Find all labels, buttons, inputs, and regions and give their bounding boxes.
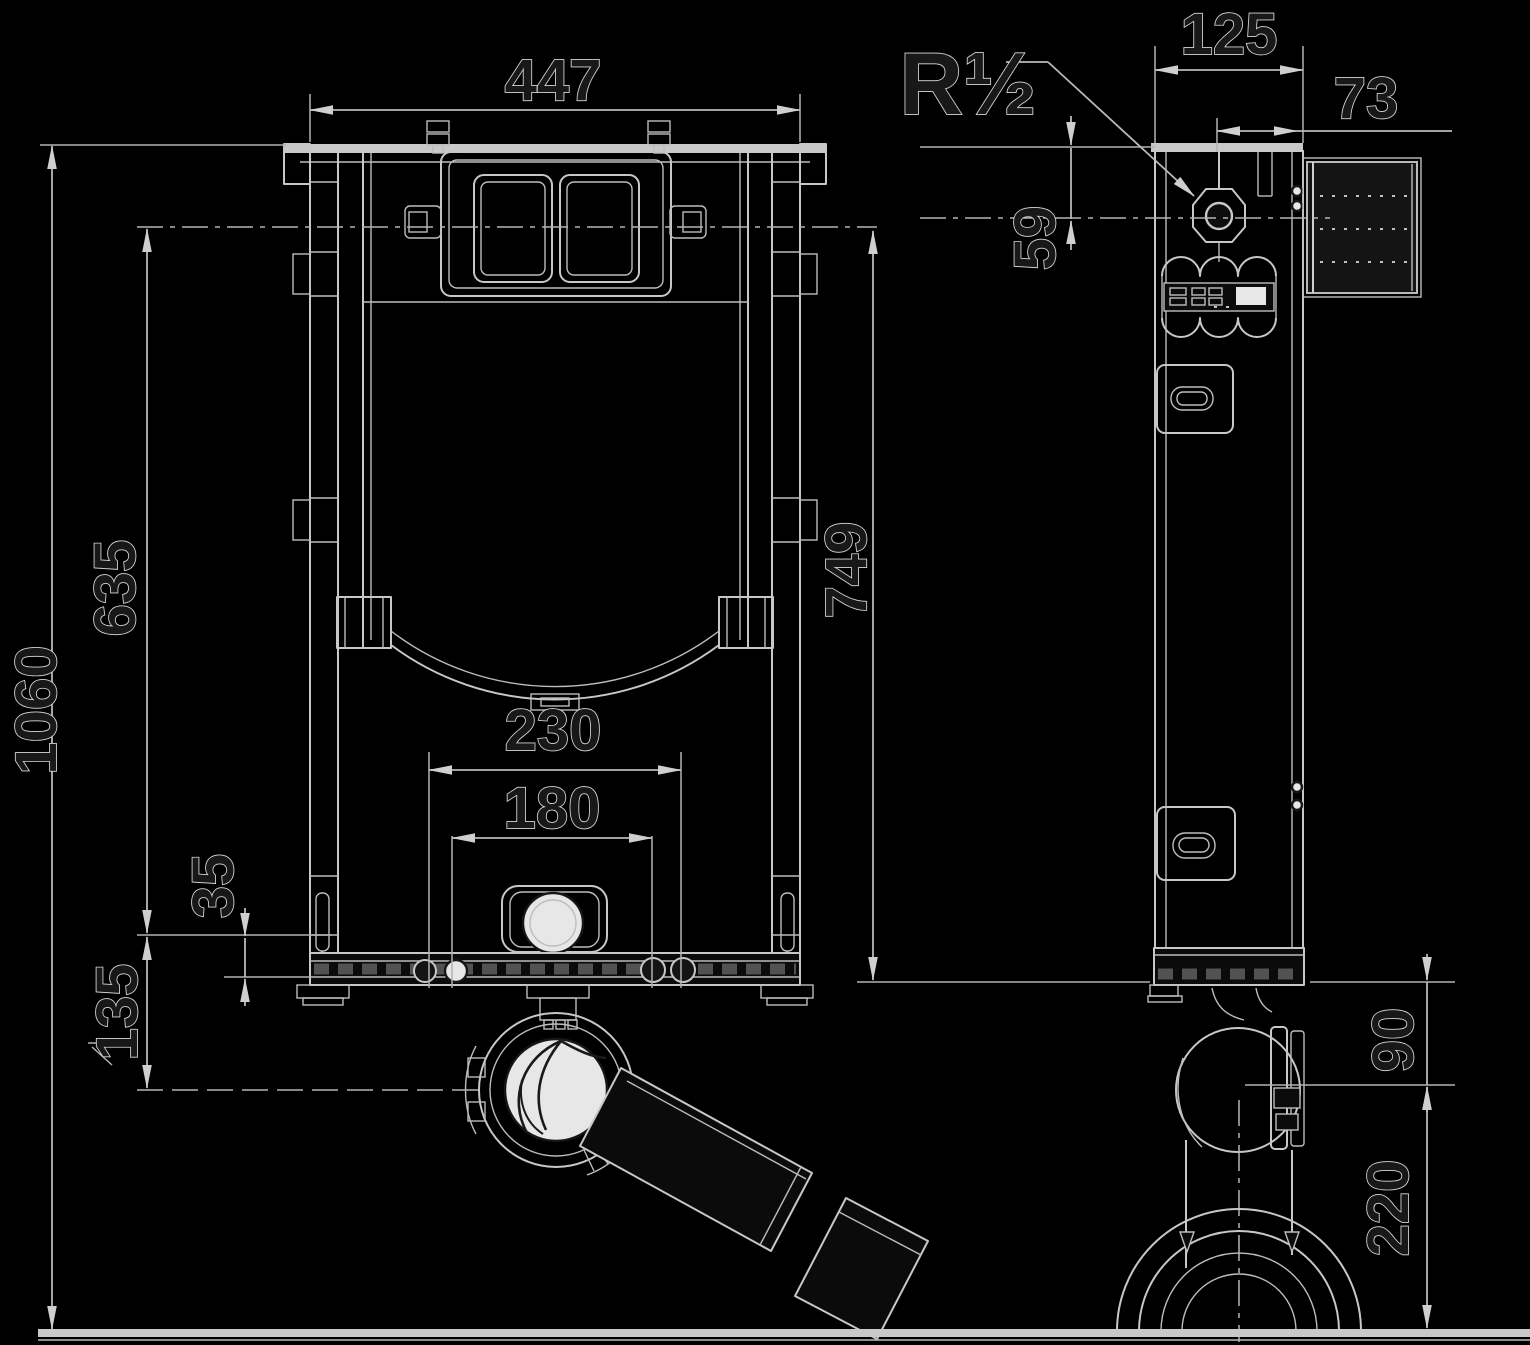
supply-thread <box>1206 203 1232 229</box>
annotation-r-half: R½ <box>900 34 1194 196</box>
dim-label-220: 220 <box>1356 1160 1421 1257</box>
fixing-hole-open <box>445 960 467 982</box>
frame-left-upright <box>293 153 338 985</box>
dim-label-90: 90 <box>1361 1008 1426 1073</box>
dim-label-35: 35 <box>181 854 246 919</box>
dim-label-1060: 1060 <box>4 645 69 774</box>
drain-assembly <box>466 985 929 1339</box>
frame-top-bar <box>284 144 826 184</box>
service-opening-lower <box>1157 807 1235 880</box>
dim-59: 59 <box>920 116 1330 270</box>
side-foot <box>1148 948 1304 1002</box>
dim-635: 635 <box>83 227 877 933</box>
dim-label-230: 230 <box>505 698 602 763</box>
dim-35: 35 <box>181 854 310 1006</box>
dim-label-135: 135 <box>85 964 150 1061</box>
fixing-hole <box>641 958 665 982</box>
side-frame <box>1151 143 1303 948</box>
dim-label-447: 447 <box>505 48 602 113</box>
floor-line <box>38 1329 1530 1340</box>
dim-220: 220 <box>1356 1087 1427 1328</box>
outlet-spigot <box>795 1198 928 1339</box>
bowl-support-bracket <box>337 597 773 710</box>
frame-right-upright <box>772 153 817 985</box>
dim-749: 749 <box>814 231 1455 982</box>
drain-elbow-side <box>1117 988 1361 1342</box>
dim-label-180: 180 <box>504 776 601 841</box>
adjustable-feet <box>297 985 813 1005</box>
frame-bottom-rail <box>310 953 800 985</box>
service-opening-upper <box>1157 365 1233 433</box>
dim-label-635: 635 <box>83 540 148 637</box>
corrugated-flush-pipe <box>1162 257 1276 337</box>
outlet-pipe <box>580 1068 812 1251</box>
front-view <box>284 121 928 1339</box>
flush-button-large <box>474 175 552 282</box>
dim-label-125: 125 <box>1181 2 1278 67</box>
side-clamps <box>405 206 706 238</box>
flush-button-small <box>560 175 639 282</box>
fixing-hole <box>414 960 436 982</box>
fixing-hole <box>671 958 695 982</box>
supply-connection-side <box>1193 152 1245 262</box>
actuator-plate-side <box>1303 158 1421 297</box>
dim-447: 447 <box>310 48 800 142</box>
annotation-label-r-half: R½ <box>900 34 1037 133</box>
technical-drawing: 447 1060 635 135 35 <box>0 0 1530 1345</box>
dim-125: 125 <box>1155 2 1303 143</box>
water-supply-fitting <box>502 886 607 953</box>
dim-73: 73 <box>1217 66 1452 152</box>
dim-label-59: 59 <box>1003 206 1068 271</box>
dim-label-73: 73 <box>1334 66 1399 131</box>
dim-label-749: 749 <box>814 522 879 619</box>
dim-1060: 1060 <box>4 145 286 1329</box>
